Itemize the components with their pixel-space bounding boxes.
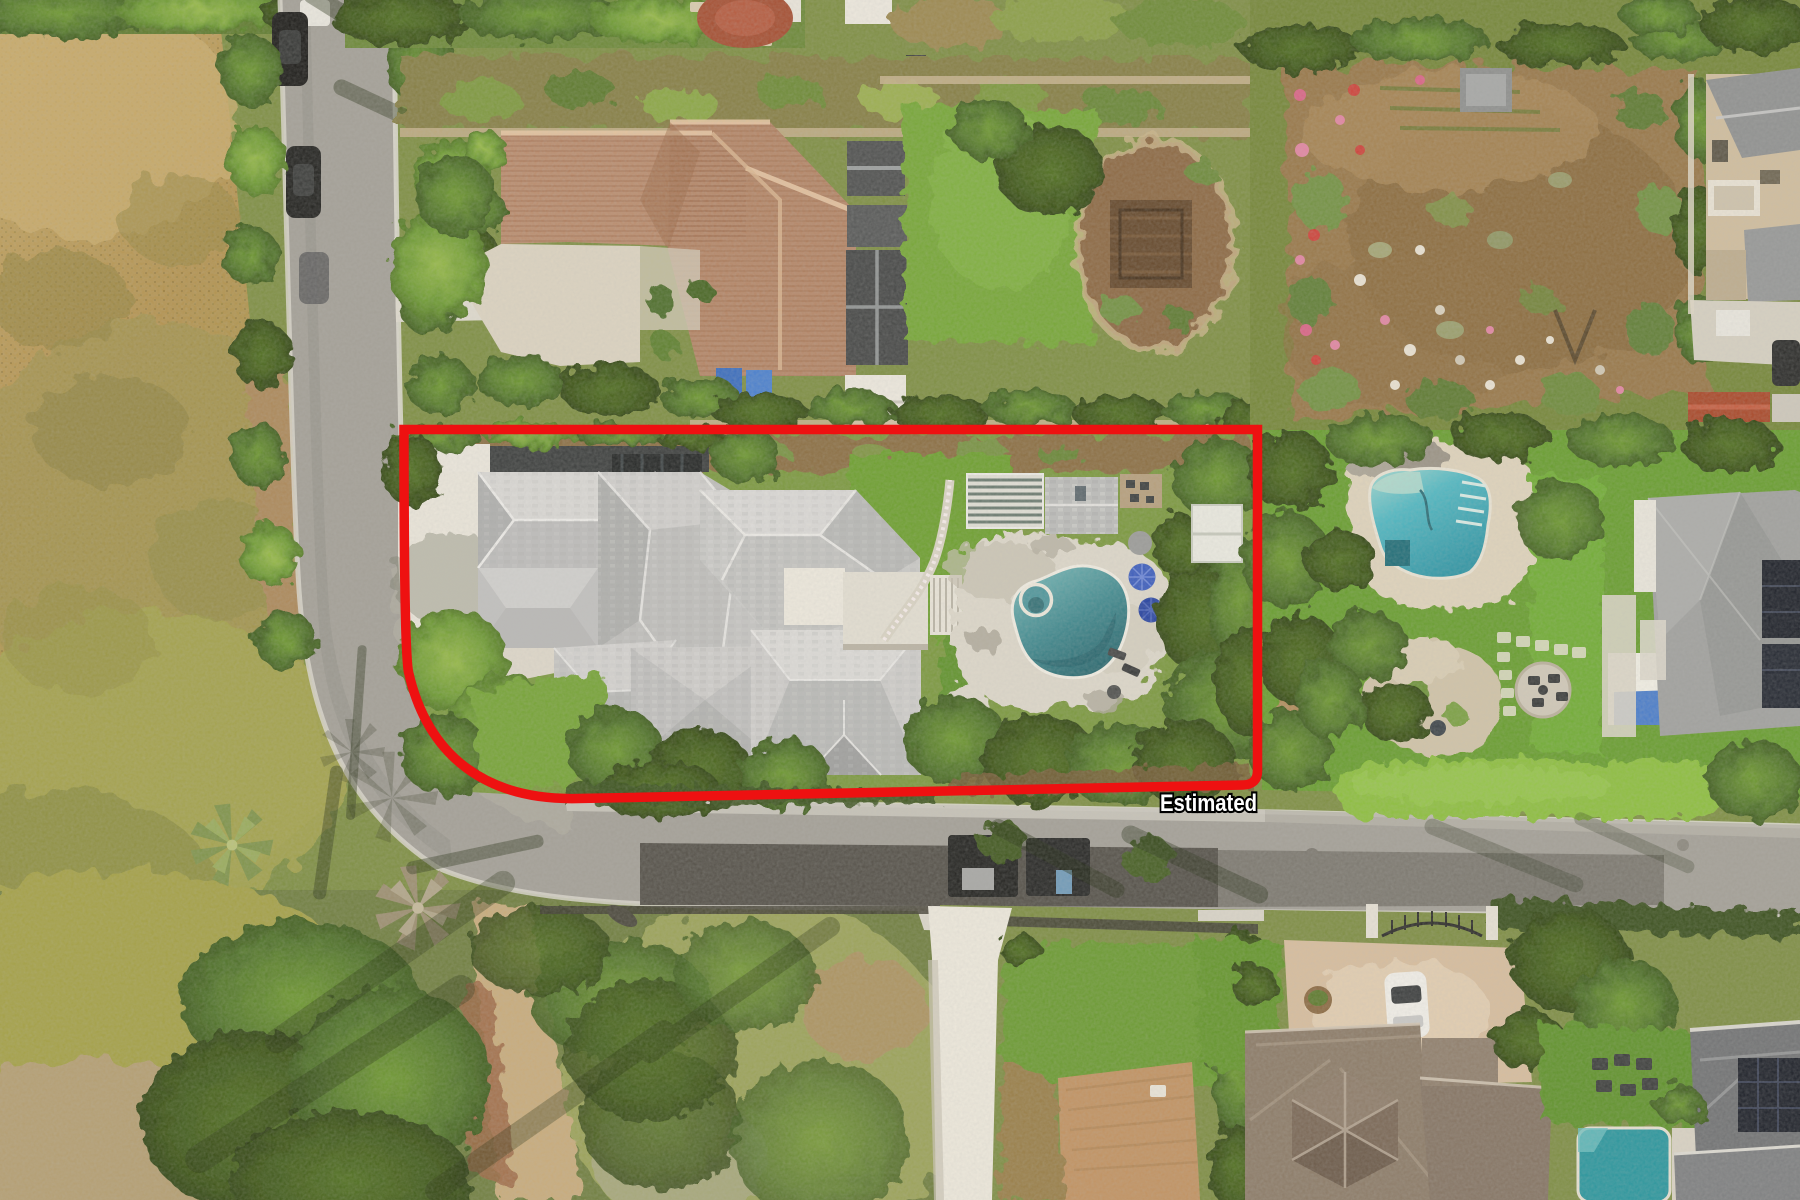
svg-text:Estimated: Estimated [1160,790,1257,817]
